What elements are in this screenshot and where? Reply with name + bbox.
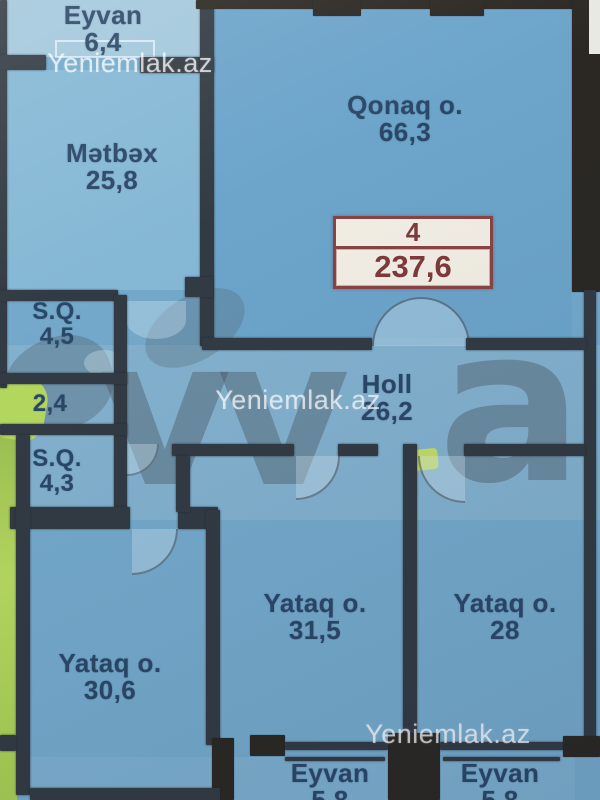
room-label-eyvan-bottom-right: Eyvan 5,8	[420, 760, 580, 800]
wall-top-block-1	[313, 0, 361, 16]
room-area: 4,3	[7, 471, 107, 496]
wall-bathroom-vertical	[114, 295, 127, 521]
site-watermark-top: Yeniemlak.az	[0, 49, 280, 79]
photo-edge-sliver	[589, 0, 600, 54]
room-label-yataq-left: Yataq o. 30,6	[30, 650, 190, 705]
room-area: 31,5	[235, 617, 395, 644]
room-area: 28	[425, 617, 585, 644]
site-watermark-middle: Yeniemlak.az	[148, 386, 448, 416]
wall-bedroom-divider-left	[206, 510, 220, 745]
wall-living-bottom-left	[202, 338, 372, 350]
room-area: 30,6	[30, 677, 190, 704]
wall-hall-bottom-c	[464, 444, 585, 456]
wall-hall-stub-vertical	[176, 456, 190, 512]
room-label-eyvan-bottom-left: Eyvan 5,8	[250, 760, 410, 800]
wall-corridor-bottom	[0, 424, 127, 435]
wall-living-bottom-right	[466, 338, 586, 350]
room-area: 5,8	[250, 787, 410, 800]
room-name: Eyvan	[250, 760, 410, 787]
room-name: Yataq o.	[30, 650, 190, 677]
room-name: Yataq o.	[235, 590, 395, 617]
wall-top-block-2	[430, 0, 484, 16]
info-badge: 4 237,6	[333, 216, 493, 289]
wall-bottom-a	[250, 735, 285, 756]
room-name: S.Q.	[7, 299, 107, 324]
wall-right-outer-lower	[584, 290, 596, 745]
site-watermark-bottom: Yeniemlak.az	[298, 720, 598, 750]
room-label-yataq-middle: Yataq o. 31,5	[235, 590, 395, 645]
room-area: 2,4	[10, 391, 90, 416]
room-name: Eyvan	[23, 2, 183, 29]
badge-room-count: 4	[336, 219, 490, 246]
room-name: Mətbəx	[32, 140, 192, 167]
room-area: 66,3	[325, 119, 485, 146]
wall-left-bottom-stub	[0, 735, 16, 751]
bedroom-left-door-arc	[132, 529, 178, 575]
room-area: 4,5	[7, 324, 107, 349]
room-label-sq-upper: S.Q. 4,5	[7, 299, 107, 349]
wall-hall-bottom-a	[172, 444, 294, 456]
floorplan-image: vv a Eyvan 6,4 Mə	[0, 0, 600, 800]
room-name: Qonaq o.	[325, 92, 485, 119]
room-name: Yataq o.	[425, 590, 585, 617]
room-name: Eyvan	[420, 760, 580, 787]
room-label-qonaq: Qonaq o. 66,3	[325, 92, 485, 147]
badge-total-area: 237,6	[336, 246, 490, 286]
room-name: S.Q.	[7, 446, 107, 471]
room-area: 25,8	[32, 167, 192, 194]
wall-hall-bottom-b	[338, 444, 378, 456]
wall-bedroom-divider-right	[403, 444, 417, 744]
wall-top-outer	[196, 0, 600, 9]
kitchen-door-arc	[126, 301, 186, 339]
wall-bedroom-left-bottom	[30, 788, 220, 800]
wall-bathroom-upper-bottom	[0, 373, 127, 384]
room-area: 5,8	[420, 787, 580, 800]
room-label-corridor: 2,4	[10, 391, 90, 416]
room-label-sq-lower: S.Q. 4,3	[7, 446, 107, 496]
wall-divider-stub	[185, 277, 213, 297]
room-label-yataq-right: Yataq o. 28	[425, 590, 585, 645]
room-label-metbex: Mətbəx 25,8	[32, 140, 192, 195]
